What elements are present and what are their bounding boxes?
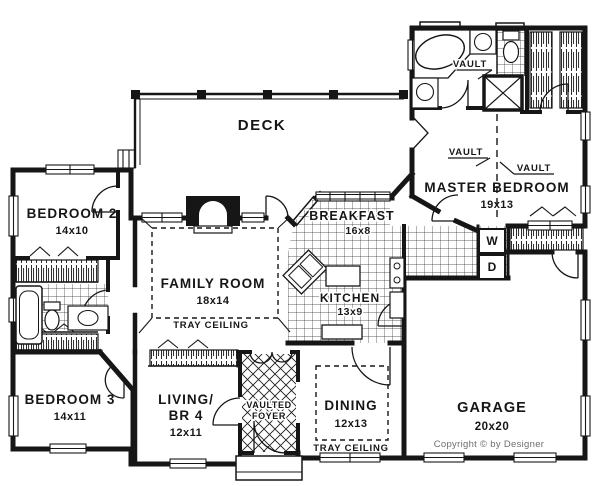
copyright-note: Copyright © by Designer (434, 439, 545, 450)
bedroom3-label: BEDROOM 3 (25, 392, 116, 407)
kitchen-dims: 13x9 (337, 306, 362, 318)
foyer-label-1: VAULTED (246, 400, 291, 410)
master-bedroom-label: MASTER BEDROOM (424, 180, 569, 195)
kitchen-fridge (390, 292, 404, 318)
washer-label: W (486, 234, 498, 248)
living-br4-label-1: LIVING/ (158, 392, 214, 407)
living-br4-label-2: BR 4 (169, 408, 204, 423)
kitchen-range (390, 258, 404, 288)
dryer-label: D (488, 260, 497, 274)
family-room-label: FAMILY ROOM (161, 276, 266, 291)
family-tray-label: TRAY CEILING (173, 320, 249, 331)
master-vanity-top (470, 30, 496, 54)
bedroom2-left-window (9, 196, 18, 236)
garage-label: GARAGE (457, 400, 527, 416)
garage-dims: 20x20 (475, 421, 509, 433)
master-tub (411, 29, 470, 78)
dining-label: DINING (324, 398, 377, 413)
family-room-dims: 18x14 (196, 295, 229, 307)
living-bottom-window (170, 459, 206, 468)
master-vault-right-label: VAULT (517, 163, 551, 174)
master-right-window-2 (581, 186, 590, 213)
bath-vault-label: VAULT (453, 59, 487, 70)
master-entry-door (432, 195, 458, 221)
master-vanity-left (412, 78, 438, 108)
breakfast-label: BREAKFAST (309, 209, 394, 223)
bedroom2-dims: 14x10 (55, 225, 88, 237)
walkin-closet-right-rod (560, 32, 582, 108)
living-closet (150, 350, 238, 366)
dining-tray-label: TRAY CEILING (313, 443, 389, 454)
floor-plan-sheet: DECK BEDROOM 2 14x10 FAMILY ROOM 18x14 T… (0, 0, 600, 486)
family-north-window-1 (142, 213, 182, 222)
living-br4-dims: 12x11 (170, 427, 202, 439)
floor-plan-drawing: DECK BEDROOM 2 14x10 FAMILY ROOM 18x14 T… (0, 0, 600, 486)
bedroom3-bottom-window (50, 444, 86, 453)
living-closet-bifold (158, 340, 208, 348)
bedroom2-label: BEDROOM 2 (27, 206, 118, 221)
family-north-window-2 (242, 213, 264, 222)
kitchen-island (322, 325, 362, 339)
bedroom2-top-window (46, 165, 94, 174)
master-shower (484, 76, 522, 110)
living-door (213, 398, 240, 425)
master-right-window-1 (581, 112, 590, 140)
deck-steps (118, 150, 135, 168)
master-vault-left-label: VAULT (449, 147, 483, 158)
master-window-trim-marks (530, 207, 576, 216)
breakfast-dims: 16x8 (345, 225, 370, 237)
deck-label: DECK (238, 117, 287, 134)
master-french-doors (412, 116, 428, 150)
master-bedroom-dims: 19x13 (480, 199, 513, 211)
master-bottom-window (528, 221, 572, 230)
kitchen-counter (326, 266, 360, 286)
master-toilet (503, 31, 519, 63)
garage-bottom-window-2 (514, 453, 556, 462)
family-deck-door (266, 196, 288, 218)
foyer-label-2: FOYER (252, 411, 286, 421)
master-vault-left-arrow (448, 158, 490, 166)
bedroom3-left-window (9, 396, 18, 436)
hall-bath-toilet (44, 302, 60, 330)
bedroom2-bifold (30, 247, 78, 256)
garage-entry-door (552, 252, 578, 278)
hall-bath-vanity (68, 306, 108, 330)
garage-right-opening-1 (581, 300, 590, 340)
breakfast-window-wall (316, 192, 390, 201)
bedroom2-closet (16, 260, 98, 282)
bedroom3-dims: 14x11 (54, 411, 86, 423)
mud-hall-closet (510, 228, 583, 250)
hall-bath-tub (16, 286, 42, 344)
garage-right-opening-2 (581, 396, 590, 436)
dining-bottom-window (320, 453, 380, 462)
master-bath-door (440, 80, 468, 108)
dining-dims: 12x13 (334, 418, 367, 430)
garage-bottom-window-1 (424, 453, 464, 462)
walkin-closet-left-rod (530, 32, 552, 108)
fireplace (186, 196, 240, 233)
kitchen-label: KITCHEN (320, 291, 380, 305)
front-stoop (236, 456, 302, 480)
